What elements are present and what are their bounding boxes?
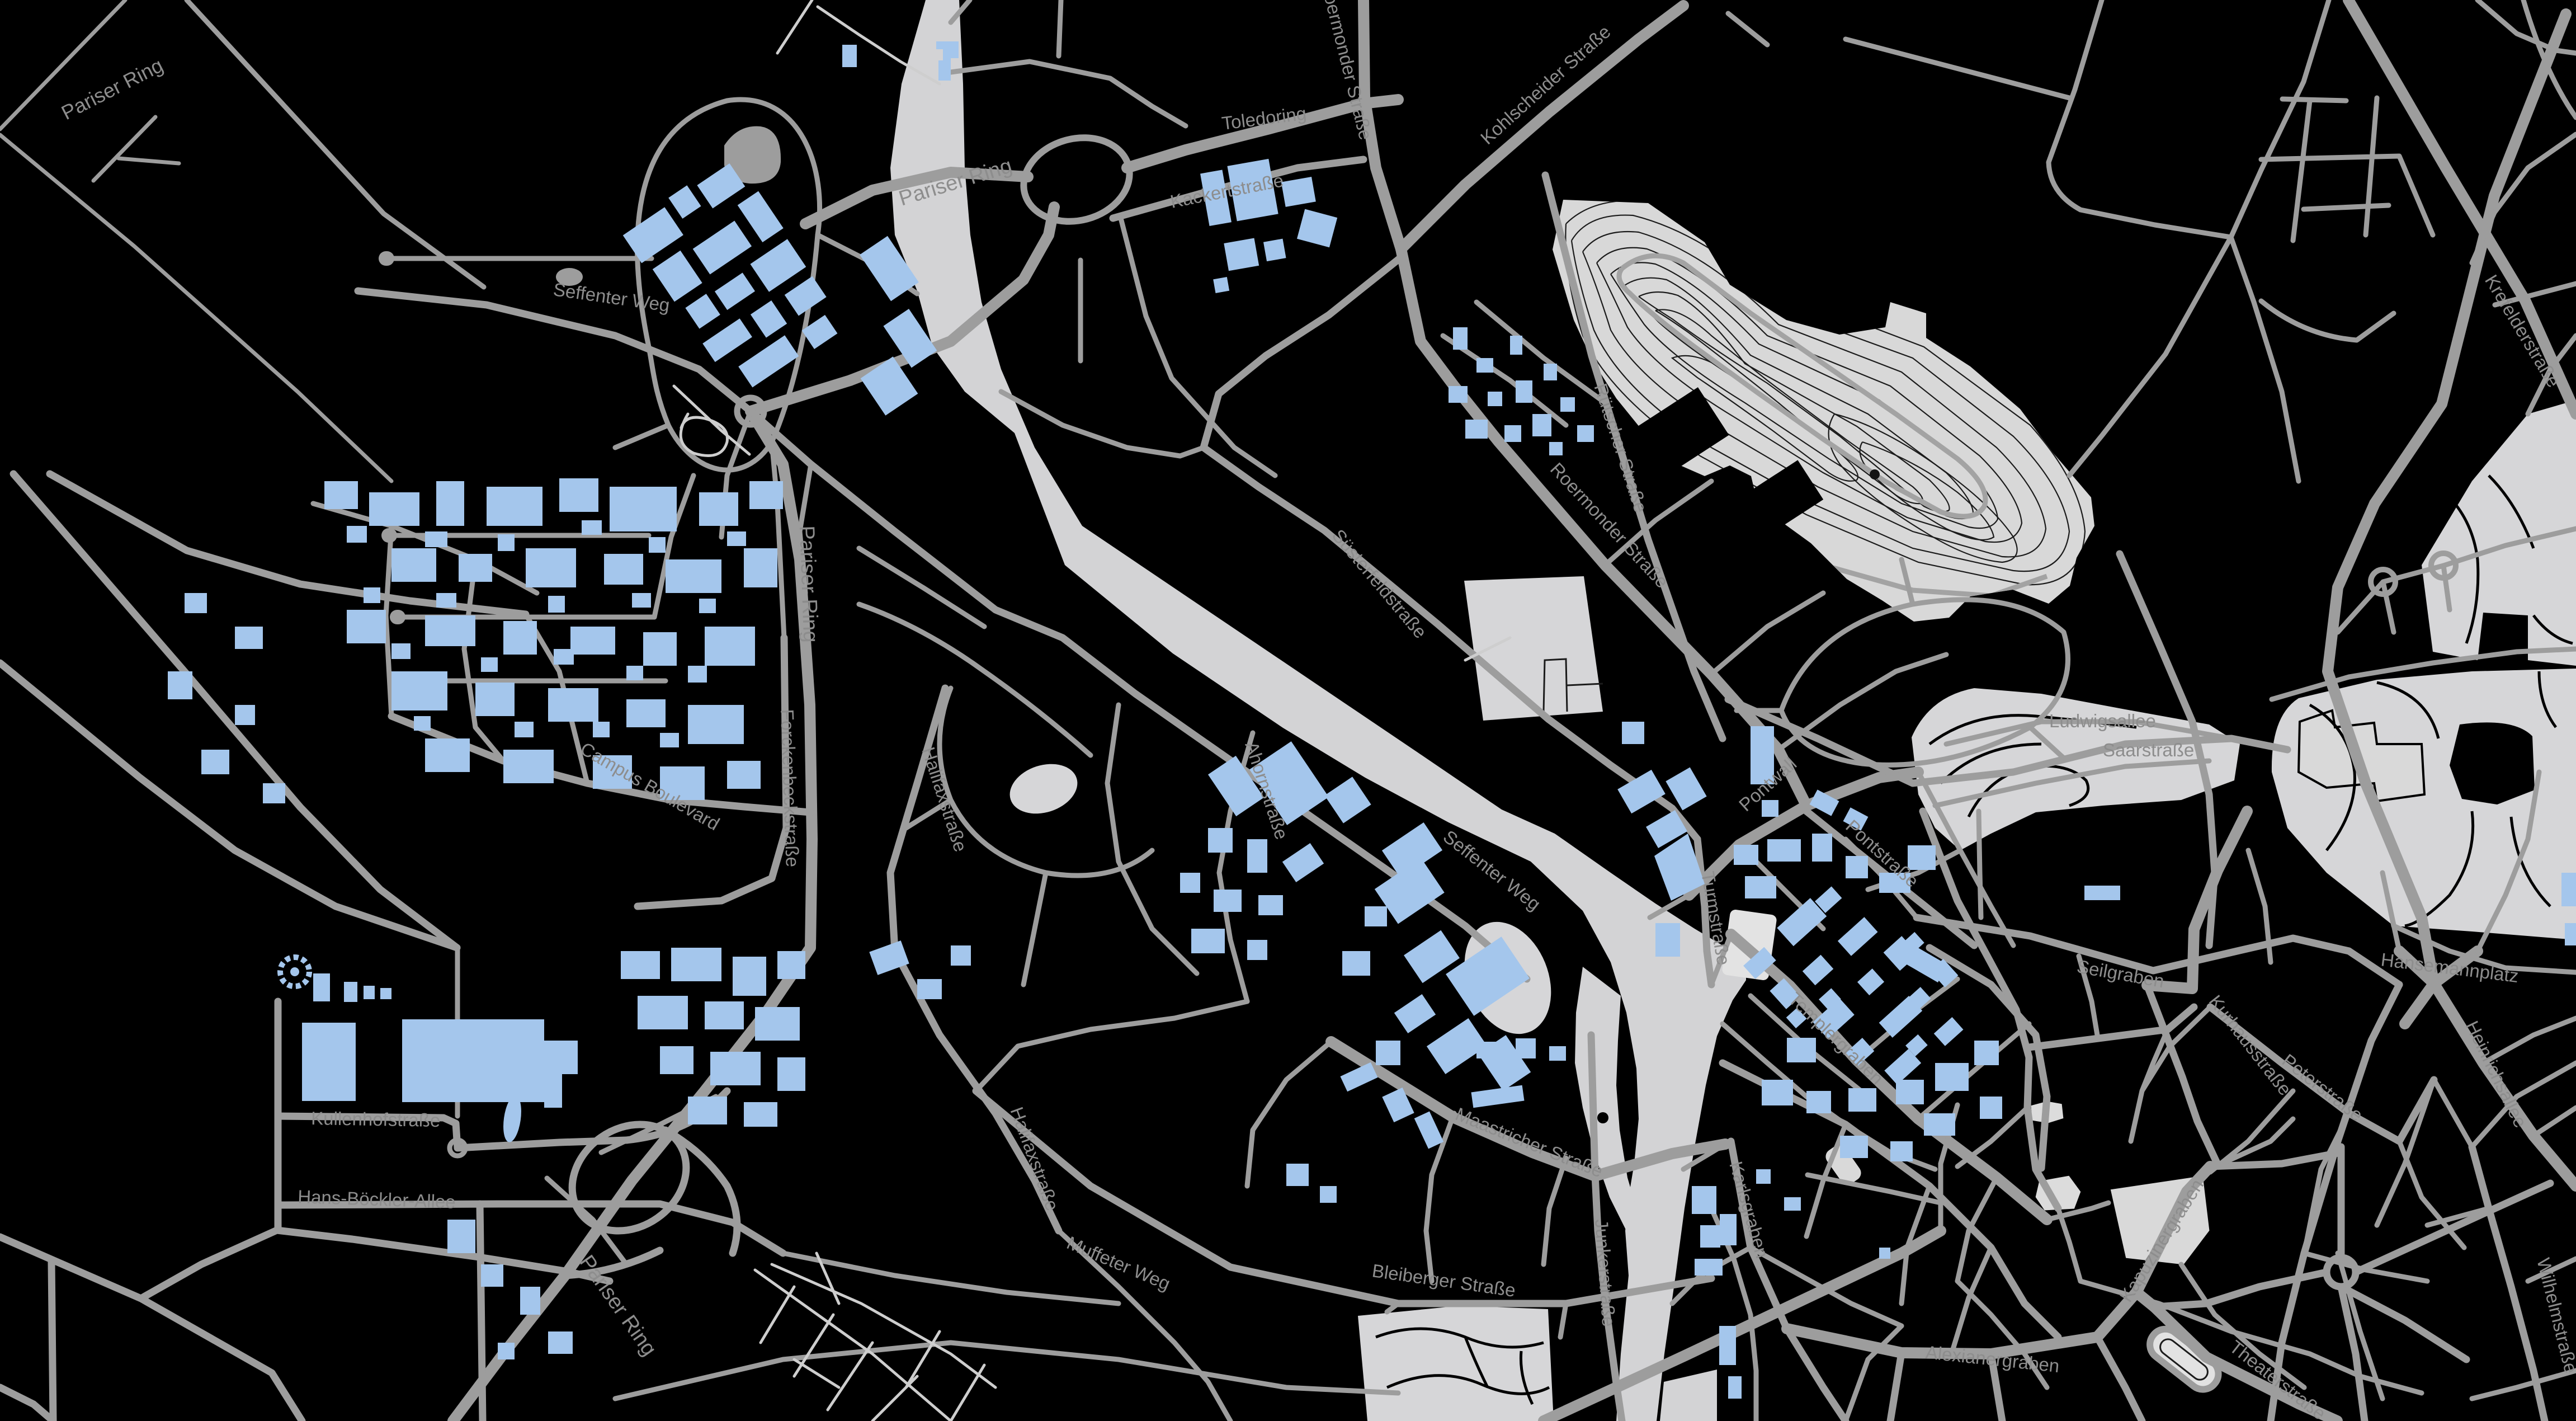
svg-text:Pariser Ring: Pariser Ring — [795, 525, 822, 643]
svg-text:Ludwigsallee: Ludwigsallee — [2049, 710, 2156, 731]
svg-text:Kullenhofstraße: Kullenhofstraße — [311, 1108, 441, 1131]
svg-text:Saarstraße: Saarstraße — [2103, 740, 2194, 760]
